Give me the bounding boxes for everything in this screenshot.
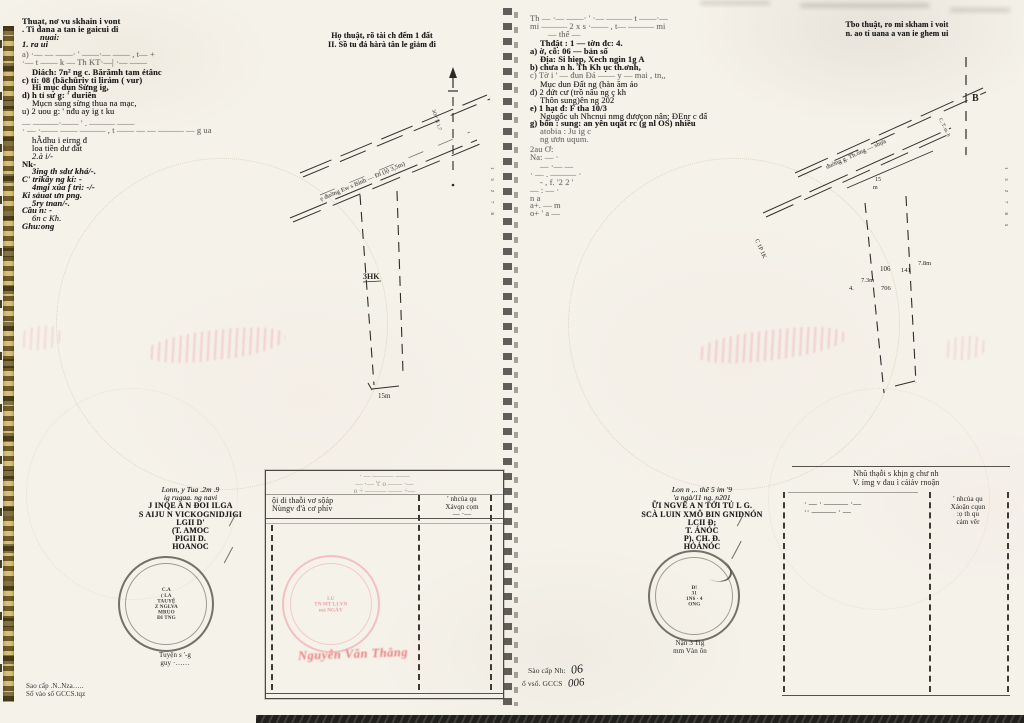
parcel-bottom-dimension: 15m bbox=[378, 392, 391, 400]
header-line: ·· ——— · — bbox=[804, 508, 914, 516]
plot-number: 4. bbox=[849, 285, 854, 292]
text-line: ·— t —— k — Th KT·—| ·— —— bbox=[22, 59, 254, 67]
footer-line: Sao cấp .N..Nza….. bbox=[26, 682, 85, 690]
road-side-label: 3O-ª N 1.7 bbox=[430, 109, 443, 132]
road-label: đuờng g. Th.ống — shựa bbox=[825, 138, 887, 171]
parcel-label: 3HK bbox=[363, 272, 380, 281]
road-end-label: C 1P 1K bbox=[753, 238, 767, 260]
name-line: guy ·…… bbox=[120, 660, 230, 668]
signatory-name: Tuyện s '-gguy ·…… bbox=[120, 652, 230, 667]
red-stamp-line: mà NGÀY bbox=[314, 607, 347, 613]
table-title: Nhũ thạỗi s khịn g chư nhV. ỉmg v đau ì … bbox=[782, 470, 1010, 487]
cadastral-diagram-left: ẹ đuờng Ew s Bính — Đl (lộ 3,5m) 3O-ª N … bbox=[235, 55, 510, 400]
authority-signature-block: Lonn, y Tua .2m .9ig rugaa. ng naviJ INQ… bbox=[98, 486, 283, 552]
text-line: 1. ra ui bbox=[22, 41, 254, 49]
text-line: Ghu:ong bbox=[22, 223, 254, 231]
right-page: Th — ·— ——· ' ·— ——— t ——·—mi ——— 2 x s … bbox=[518, 8, 1018, 708]
road-width-a: 15 bbox=[875, 177, 881, 183]
width-dimension: 7.8m bbox=[918, 260, 931, 267]
parcel-details-text: Thuạt, nơ vu skhain i vont. Ti dana a ta… bbox=[22, 18, 254, 231]
heading-line: II. Sồ tu đá hàrà tân le giảm đi bbox=[256, 41, 508, 50]
north-arrow-icon bbox=[449, 67, 457, 78]
text-line: 6n c Kh. bbox=[32, 215, 254, 223]
signature-line: HOANOC bbox=[98, 543, 283, 551]
table-col2-header: ' nhcủa quXáoận cqun:ọ th qucảm vêr bbox=[932, 496, 1004, 526]
stamp-text-line: ĐI TNG bbox=[155, 615, 178, 621]
red-signature-name: Nguyễn Văn Thắng bbox=[298, 645, 409, 664]
scanned-land-certificate: Thuạt, nơ vu skhain i vont. Ti dana a ta… bbox=[0, 0, 1024, 723]
table-col1-header: · — · ——— ·—·· ——— · — bbox=[804, 500, 914, 516]
footer-line: Số vào sổ GCCS.tqz bbox=[26, 690, 85, 698]
text-line: 2.à i/- bbox=[32, 153, 254, 161]
name-line: mm Vàn ôn bbox=[630, 648, 750, 656]
table-col1-header: ội di thaỗi vơ sộápNùngv đ'à cơ phív bbox=[272, 497, 418, 513]
authority-signature-block: Lon n ,.. thê 5 im '9'a ngà/11 ng. n201Ữ… bbox=[612, 486, 792, 552]
road-side-label: C. T. m. h bbox=[937, 118, 950, 138]
table-col2-header: ' nhcủa quXávqn cọm— ·— bbox=[424, 496, 500, 519]
plot-number: 141 bbox=[901, 267, 911, 274]
footer-label: ổ vsổ. GCCS bbox=[522, 680, 563, 688]
diagram-section-heading: Tbo thuật, ro mi skham i voitn. ao tí ua… bbox=[776, 21, 1018, 38]
stamp-text-line: ONG bbox=[686, 602, 702, 608]
red-seal: LUTN MT LI.VNmà NGÀY bbox=[282, 555, 380, 653]
edge-marks bbox=[0, 40, 2, 680]
handwritten-number: 006 bbox=[567, 676, 584, 689]
text-line: — thế — bbox=[548, 31, 780, 39]
header-line: Nùngv đ'à cơ phív bbox=[272, 505, 418, 513]
plot-number: 106 bbox=[880, 265, 891, 273]
text-line: 5ry tnan/-. bbox=[32, 200, 254, 208]
left-page: Thuạt, nơ vu skhain i vont. Ti dana a ta… bbox=[16, 8, 502, 708]
width-dimension: 7.3m bbox=[861, 277, 874, 284]
text-line: u) 2 uou g: ' nđu ay ig t ku bbox=[22, 108, 254, 116]
text-line: · — ·—— —— ——— , t —— — — ——— — g ua bbox=[22, 127, 254, 135]
red-stamp-line: TN MT LI.VN bbox=[314, 601, 347, 607]
text-line: nuai: bbox=[40, 34, 254, 42]
road-width-b: m bbox=[873, 185, 878, 191]
scan-streak bbox=[700, 1, 770, 5]
footer-label: Sào cấp Nh: bbox=[528, 667, 566, 675]
changes-table: Nhũ thạỗi s khịn g chư nhV. ỉmg v đau ì … bbox=[782, 466, 1010, 698]
coordinate-ticks: 1 5 2 7 8 5 bbox=[1004, 167, 1009, 230]
handwritten-number: 06 bbox=[570, 661, 584, 678]
road-label: ẹ đuờng Ew s Bính — Đl (lộ 3,5m) bbox=[319, 161, 406, 203]
diagram-section-heading: Họ thuật, rõ tài ch đếm 1 đấtII. Sồ tu đ… bbox=[256, 32, 508, 49]
binding-edge bbox=[3, 26, 14, 702]
official-round-stamp: Đ!311N6 - 4ONG bbox=[648, 550, 740, 642]
certificate-number-note: Sào cấp Nh: 06 ổ vsổ. GCCS 006 bbox=[528, 662, 584, 689]
coordinate-ticks: 1 5 2 7 8 bbox=[490, 167, 495, 219]
certificate-number-note: Sao cấp .N..Nza…..Số vào sổ GCCS.tqz bbox=[26, 682, 85, 698]
cadastral-diagram-right: B đuờng g. Th.ống — shựa C 1P 1K C. T. m… bbox=[735, 55, 1020, 395]
table-title-line: V. ỉmg v đau ì cảiảv rnoận bbox=[782, 479, 1010, 488]
heading-line: n. ao tí uana a van ie ghem ui bbox=[776, 30, 1018, 39]
text-line: loa tiền dư đất bbox=[32, 145, 254, 153]
header-line: cảm vêr bbox=[932, 519, 1004, 527]
compass-north-label: B bbox=[972, 93, 979, 104]
plot-number: 706 bbox=[881, 285, 892, 292]
pink-watermark bbox=[17, 323, 64, 352]
changes-table: · — ——— ——— ·— 't' o —— ·—o ÷ ——— —— ÷— … bbox=[265, 470, 504, 699]
signatory-name: Nận 3 Tigmm Vàn ôn bbox=[630, 640, 750, 655]
scan-dark-band bbox=[256, 715, 1024, 723]
official-round-stamp: C.A( LATAUYỆZ NGLVAMRUOĐI TNG bbox=[118, 556, 214, 652]
red-stamp-line: LU bbox=[314, 596, 347, 602]
